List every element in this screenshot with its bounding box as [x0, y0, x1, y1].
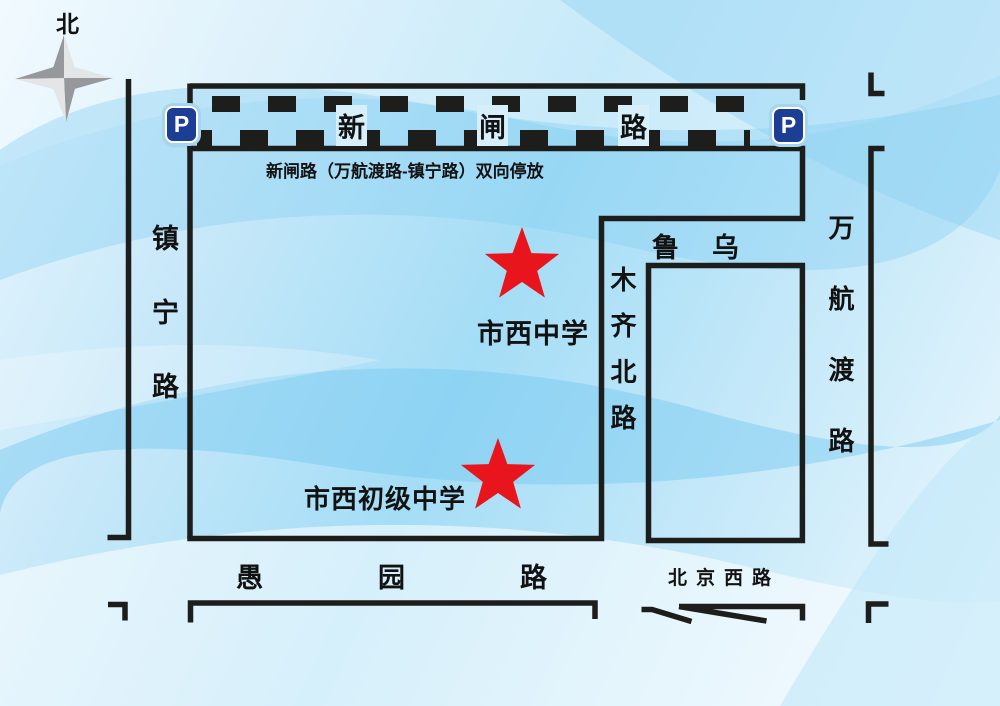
parking-map: P P 北 新闸路 新闸路（万航渡路-镇宁路）双向停放 镇宁路 鲁乌 木齐北路 … [0, 0, 1000, 706]
parking-rule-note: 新闸路（万航渡路-镇宁路）双向停放 [266, 157, 544, 182]
road-line-zhenning-west [108, 79, 129, 538]
road-label-char: 新 [336, 105, 367, 146]
road-line-yuyuan-south [191, 603, 596, 623]
road-label-beijing-west: 北京西路 [668, 563, 780, 590]
parking-icon: P [165, 106, 198, 143]
parking-icon: P [772, 107, 805, 144]
school-label-shixi-high: 市西中学 [477, 312, 589, 351]
road-label-char: 路 [618, 105, 649, 146]
road-line-wanhangdu-east [871, 149, 889, 545]
road-label-zhenning: 镇宁路 [144, 224, 183, 446]
school-star-icon [461, 438, 535, 509]
road-line-diagonal-short [642, 610, 692, 622]
road-label-wulumuqi-horizontal: 鲁乌 [652, 226, 772, 265]
school-label-shixi-junior: 市西初级中学 [304, 479, 466, 516]
road-label-wulumuqi-vertical: 木齐北路 [604, 266, 641, 450]
school-markers [461, 227, 559, 509]
road-label-xinzha: 新闸路 [336, 105, 649, 146]
road-label-char: 闸 [477, 105, 508, 146]
compass-rose [15, 35, 113, 122]
school-star-icon [485, 227, 559, 298]
road-line-diagonal-long [679, 607, 803, 622]
road-line-zhenning-south-stub [108, 605, 125, 621]
road-line-wanhangdu-south-stub [869, 604, 889, 623]
road-label-yuyuan: 愚园路 [236, 556, 662, 595]
road-line-inner-block [649, 266, 803, 541]
compass-north-label: 北 [56, 5, 79, 39]
road-line-wanhangdu-north-stub [871, 73, 885, 94]
road-label-wanhangdu: 万航渡路 [822, 214, 859, 498]
